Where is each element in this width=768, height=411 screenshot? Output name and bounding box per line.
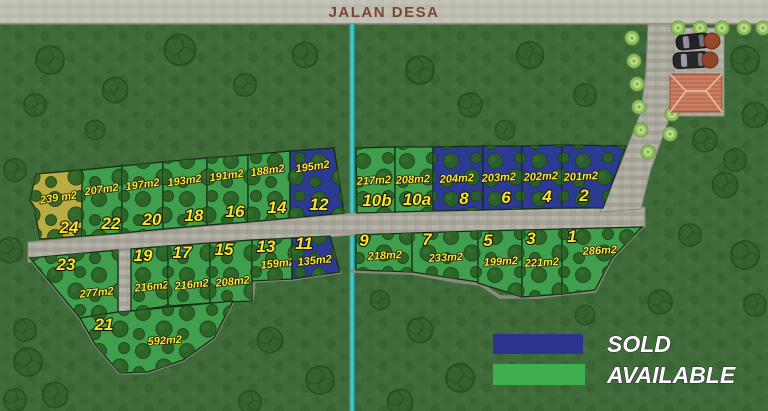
plot-4: 202m2 4 — [522, 145, 562, 209]
plot-1-number: 1 — [567, 227, 576, 246]
plot-6: 203m2 6 — [480, 146, 522, 210]
plot-23-number: 23 — [56, 255, 76, 274]
plot-2-size: 201m2 — [562, 170, 598, 184]
plot-16: 191m2 16 — [207, 155, 248, 225]
plot-19: 19 216m2 — [131, 246, 169, 311]
plot-14-number: 14 — [268, 198, 287, 217]
plot-10b-size: 217m2 — [355, 174, 391, 188]
plot-10b: 217m2 10b — [355, 147, 395, 213]
plot-10a: 208m2 10a — [394, 147, 433, 212]
plot-18: 193m2 18 — [163, 158, 207, 229]
plot-6-number: 6 — [501, 188, 511, 207]
plot-16-number: 16 — [226, 202, 245, 221]
plot-3-number: 3 — [526, 229, 536, 248]
plot-17-number: 17 — [173, 243, 193, 262]
plot-10b-number: 10b — [362, 191, 391, 210]
legend-available-swatch — [493, 364, 585, 385]
plot-5-size: 199m2 — [483, 255, 518, 269]
site-plan-map: JALAN DESA 239 m2 24 207m2 22 197m2 20 — [0, 0, 768, 411]
plot-11-number: 11 — [295, 234, 313, 253]
house-icon — [670, 74, 722, 112]
footpath-stub — [118, 249, 131, 312]
plot-17: 17 216m2 — [168, 243, 210, 306]
plot-4-size: 202m2 — [522, 170, 558, 184]
plot-18-number: 18 — [185, 206, 204, 225]
car-windshield — [681, 54, 688, 67]
plot-15: 15 208m2 — [210, 240, 252, 303]
plot-12-number: 12 — [310, 195, 329, 214]
plot-2-number: 2 — [578, 186, 589, 205]
legend-sold-swatch — [493, 334, 583, 354]
plot-1-size: 286m2 — [581, 244, 617, 258]
plot-3: 3 221m2 — [522, 229, 562, 297]
plot-6-size: 203m2 — [480, 171, 516, 185]
plot-15-number: 15 — [215, 240, 234, 259]
plot-13-number: 13 — [257, 237, 276, 256]
car-windshield — [682, 36, 689, 49]
plot-7-number: 7 — [422, 230, 433, 249]
plot-9-number: 9 — [359, 231, 369, 250]
main-road-label: JALAN DESA — [329, 4, 440, 21]
plot-20-number: 20 — [142, 210, 162, 229]
plot-22: 207m2 22 — [82, 166, 122, 236]
plot-19-number: 19 — [134, 246, 153, 265]
plot-4-number: 4 — [541, 187, 552, 206]
plot-21-number: 21 — [94, 315, 114, 334]
site-plan-svg: JALAN DESA 239 m2 24 207m2 22 197m2 20 — [0, 0, 768, 411]
main-road: JALAN DESA — [0, 0, 768, 24]
house-roof-tiles — [670, 74, 722, 112]
plot-7-size: 233m2 — [427, 251, 463, 265]
plot-9-size: 218m2 — [366, 249, 402, 263]
plot-8-size: 204m2 — [438, 172, 474, 186]
plot-24-number: 24 — [59, 218, 79, 237]
plot-9: 9 218m2 — [356, 231, 412, 272]
legend-sold-label: SOLD — [607, 331, 671, 357]
plot-12: 195m2 12 — [290, 148, 344, 218]
plot-14: 188m2 14 — [248, 151, 290, 222]
plot-20: 197m2 20 — [122, 162, 163, 233]
plot-22-number: 22 — [101, 214, 121, 233]
plot-8-number: 8 — [459, 189, 469, 208]
plot-5-number: 5 — [483, 231, 493, 250]
plot-24: 239 m2 24 — [30, 170, 82, 239]
plot-10a-number: 10a — [403, 190, 431, 209]
legend-available-label: AVAILABLE — [606, 362, 736, 388]
plot-3-size: 221m2 — [523, 256, 559, 270]
plot-10a-size: 208m2 — [394, 173, 430, 187]
plot-8: 204m2 8 — [433, 146, 483, 211]
plot-13: 13 159m2 — [252, 237, 295, 281]
plot-21-size: 592m2 — [147, 334, 182, 348]
